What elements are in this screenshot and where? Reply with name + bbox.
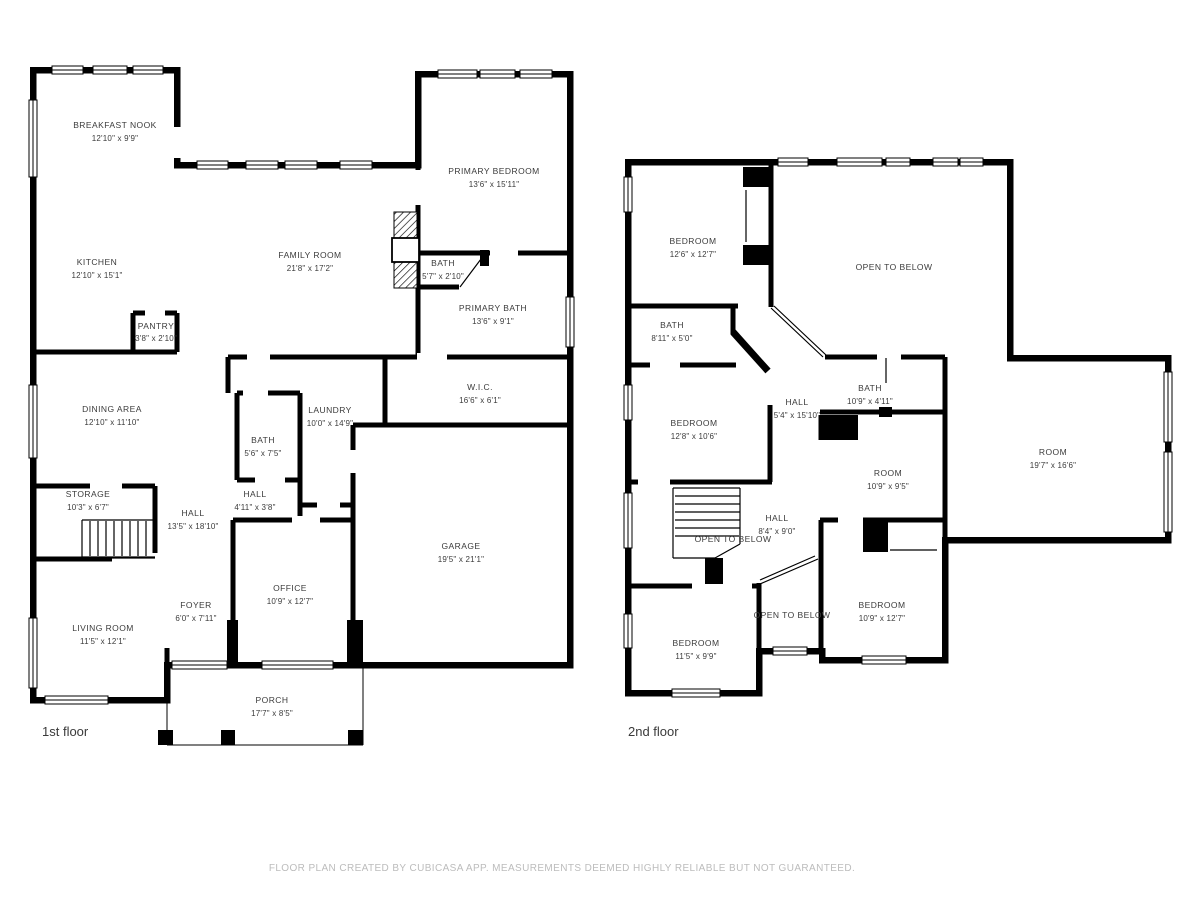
porch-pillar <box>158 730 173 745</box>
room-dims-family-room: 21'8" x 17'2" <box>287 264 333 273</box>
room-label-hall-2: HALL <box>181 508 204 518</box>
room-label-dining-area: DINING AREA <box>82 404 142 414</box>
room-dims-dining-area: 12'10" x 11'10" <box>84 418 139 427</box>
room-label-bedroom-1: BEDROOM <box>669 236 716 246</box>
room-dims-laundry: 10'0" x 14'9" <box>307 419 353 428</box>
room-label-open-to-below-2: OPEN TO BELOW <box>695 534 772 544</box>
room-label-bedroom-4: BEDROOM <box>858 600 905 610</box>
room-label-foyer: FOYER <box>180 600 212 610</box>
wall-chunk <box>480 250 489 266</box>
room-label-room-1: ROOM <box>874 468 902 478</box>
porch-outline <box>167 665 363 745</box>
fireplace <box>392 212 419 288</box>
room-dims-kitchen: 12'10" x 15'1" <box>71 271 122 280</box>
wall-chunk <box>347 620 363 665</box>
room-label-hall-3: HALL <box>785 397 808 407</box>
room-dims-hall-2: 13'5" x 18'10" <box>167 522 218 531</box>
staircase-open-to-below <box>673 488 740 558</box>
second-floor-caption: 2nd floor <box>628 724 679 739</box>
room-label-primary-bath: PRIMARY BATH <box>459 303 527 313</box>
room-label-bedroom-3: BEDROOM <box>672 638 719 648</box>
room-label-storage: STORAGE <box>66 489 111 499</box>
room-dims-porch: 17'7" x 8'5" <box>251 709 293 718</box>
room-label-hall-4: HALL <box>765 513 788 523</box>
closet-wall <box>743 167 771 187</box>
footer-disclaimer: FLOOR PLAN CREATED BY CUBICASA APP. MEAS… <box>269 863 855 874</box>
room-label-bedroom-2: BEDROOM <box>670 418 717 428</box>
diagonal-wall <box>733 332 768 371</box>
room-label-bath-1: BATH <box>431 258 455 268</box>
room-dims-hall-3: 5'4" x 15'10" <box>774 411 820 420</box>
room-dims-storage: 10'3" x 6'7" <box>67 503 109 512</box>
room-dims-office: 10'9" x 12'7" <box>267 597 313 606</box>
room-label-primary-bedroom: PRIMARY BEDROOM <box>448 166 539 176</box>
first-floor-caption: 1st floor <box>42 724 89 739</box>
room-dims-garage: 19'5" x 21'1" <box>438 555 484 564</box>
room-label-laundry: LAUNDRY <box>308 405 352 415</box>
closet-wall <box>743 245 771 265</box>
closet-wall <box>863 520 888 552</box>
room-label-family-room: FAMILY ROOM <box>278 250 341 260</box>
room-label-open-to-below-3: OPEN TO BELOW <box>754 610 831 620</box>
room-label-wic: W.I.C. <box>467 382 493 392</box>
wall-chunk <box>705 558 723 584</box>
room-dims-bath-2: 5'6" x 7'5" <box>244 449 281 458</box>
room-dims-primary-bedroom: 13'6" x 15'11" <box>469 180 520 189</box>
room-label-office: OFFICE <box>273 583 307 593</box>
room-label-porch: PORCH <box>256 695 289 705</box>
room-label-kitchen: KITCHEN <box>77 257 117 267</box>
porch-pillar <box>221 730 235 745</box>
room-dims-wic: 16'6" x 6'1" <box>459 396 501 405</box>
room-dims-breakfast-nook: 12'10" x 9'9" <box>92 134 138 143</box>
room-label-living-room: LIVING ROOM <box>72 623 134 633</box>
wall-chunk <box>820 415 858 440</box>
floor-plan-image: BREAKFAST NOOK 12'10" x 9'9" KITCHEN 12'… <box>0 0 1200 900</box>
room-label-breakfast-nook: BREAKFAST NOOK <box>73 120 157 130</box>
room-dims-living-room: 11'5" x 12'1" <box>80 637 126 646</box>
first-floor-room-labels: BREAKFAST NOOK 12'10" x 9'9" KITCHEN 12'… <box>66 120 540 718</box>
room-label-garage: GARAGE <box>441 541 480 551</box>
room-dims-bedroom-1: 12'6" x 12'7" <box>670 250 716 259</box>
door-leaf <box>746 190 937 550</box>
wall-chunk <box>227 620 238 665</box>
room-dims-room-2: 19'7" x 16'6" <box>1030 461 1076 470</box>
room-label-bath-2: BATH <box>251 435 275 445</box>
wall-chunk <box>879 407 892 417</box>
room-label-pantry: PANTRY <box>138 321 174 331</box>
room-dims-hall-1: 4'11" x 3'8" <box>234 503 275 512</box>
staircase <box>82 520 155 558</box>
room-dims-bath-4: 10'9" x 4'11" <box>847 397 893 406</box>
room-label-open-to-below-1: OPEN TO BELOW <box>856 262 933 272</box>
room-dims-bath-1: 5'7" x 2'10" <box>422 272 464 281</box>
room-label-bath-3: BATH <box>660 320 684 330</box>
room-label-bath-4: BATH <box>858 383 882 393</box>
floor-plan-page: BREAKFAST NOOK 12'10" x 9'9" KITCHEN 12'… <box>0 0 1200 900</box>
room-label-room-2: ROOM <box>1039 447 1067 457</box>
room-dims-bedroom-4: 10'9" x 12'7" <box>859 614 905 623</box>
room-dims-primary-bath: 13'6" x 9'1" <box>472 317 514 326</box>
room-dims-foyer: 6'0" x 7'11" <box>175 614 216 623</box>
room-dims-bath-3: 8'11" x 5'0" <box>651 334 692 343</box>
room-dims-bedroom-3: 11'5" x 9'9" <box>675 652 716 661</box>
room-dims-bedroom-2: 12'8" x 10'6" <box>671 432 717 441</box>
room-dims-pantry: 3'8" x 2'10" <box>135 334 177 343</box>
room-label-hall-1: HALL <box>243 489 266 499</box>
porch-pillar <box>348 730 363 745</box>
room-dims-room-1: 10'9" x 9'5" <box>867 482 909 491</box>
